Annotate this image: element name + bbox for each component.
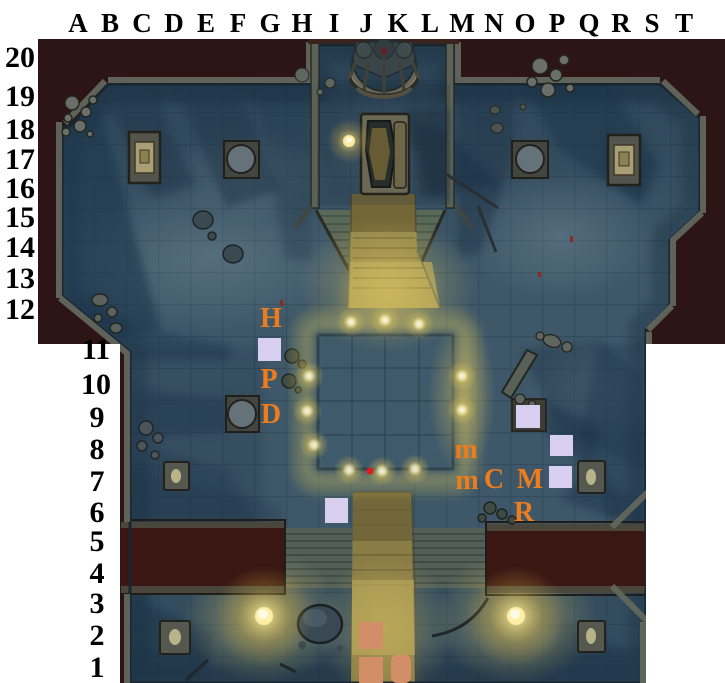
svg-text:4: 4	[90, 557, 105, 590]
svg-text:20: 20	[5, 41, 35, 74]
svg-text:G: G	[259, 8, 280, 38]
svg-text:2: 2	[90, 619, 105, 652]
svg-text:1: 1	[90, 651, 105, 683]
svg-text:14: 14	[5, 231, 35, 264]
svg-text:C: C	[132, 8, 152, 38]
svg-text:7: 7	[90, 465, 105, 498]
svg-text:8: 8	[90, 433, 105, 466]
svg-text:5: 5	[90, 525, 105, 558]
svg-text:3: 3	[90, 587, 105, 620]
svg-text:O: O	[514, 8, 535, 38]
svg-text:15: 15	[5, 201, 35, 234]
svg-text:19: 19	[5, 80, 35, 113]
svg-text:M: M	[449, 8, 474, 38]
svg-text:F: F	[230, 8, 247, 38]
svg-text:N: N	[484, 8, 504, 38]
svg-text:T: T	[675, 8, 693, 38]
svg-text:B: B	[101, 8, 119, 38]
svg-text:I: I	[329, 8, 340, 38]
svg-text:K: K	[387, 8, 408, 38]
svg-text:A: A	[68, 8, 88, 38]
svg-text:P: P	[549, 8, 566, 38]
svg-text:M: M	[517, 464, 543, 495]
svg-text:11: 11	[82, 333, 110, 366]
svg-text:R: R	[611, 8, 631, 38]
svg-text:P: P	[260, 364, 277, 395]
svg-text:m: m	[455, 465, 478, 496]
svg-text:H: H	[260, 303, 282, 334]
svg-text:9: 9	[90, 401, 105, 434]
svg-text:12: 12	[5, 293, 35, 326]
svg-text:L: L	[421, 8, 439, 38]
svg-text:m: m	[454, 434, 477, 465]
svg-text:D: D	[261, 399, 281, 430]
svg-text:R: R	[514, 497, 535, 528]
svg-text:H: H	[291, 8, 312, 38]
svg-text:D: D	[164, 8, 184, 38]
svg-text:E: E	[197, 8, 215, 38]
svg-text:C: C	[484, 464, 504, 495]
svg-text:18: 18	[5, 113, 35, 146]
svg-text:Q: Q	[578, 8, 599, 38]
svg-text:10: 10	[81, 368, 111, 401]
svg-text:J: J	[359, 8, 373, 38]
svg-text:S: S	[644, 8, 659, 38]
svg-text:13: 13	[5, 262, 35, 295]
